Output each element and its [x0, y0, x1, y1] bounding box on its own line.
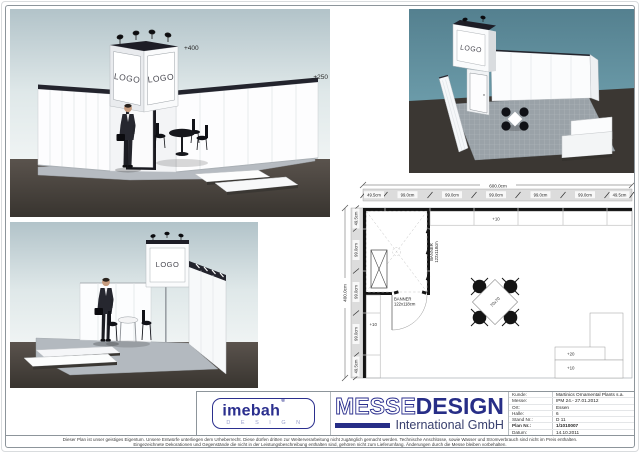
svg-text:122x118cm: 122x118cm: [434, 241, 439, 263]
banner-label-side: BANNER 122x118cm: [429, 241, 439, 263]
project-info-table: Kunde:Martinics Ornamental Plants s.a. M…: [509, 392, 634, 435]
step-high-label: +20: [567, 352, 575, 357]
dim-seg: 99.0cm: [578, 193, 592, 198]
render-side-view: LOGO: [10, 222, 258, 388]
info-value: IPM 24.- 27.01.2012: [553, 398, 634, 403]
dim-seg: 99.0cm: [354, 285, 359, 299]
dimension-top: 600.0cm 49.5cm 99.0cm 99.0cm 99.0cm 99.0…: [360, 181, 634, 201]
imebah-logo-cell: imebah® D E S I G N: [197, 392, 331, 435]
back-wall: [491, 50, 599, 102]
render-front-view: LOGO LOGO +400 +250: [10, 9, 330, 217]
floor-plan: 600.0cm 49.5cm 99.0cm 99.0cm 99.0cm 99.0…: [338, 178, 634, 389]
dim-total-width: 600.0cm: [489, 183, 507, 188]
legal-fine-print: Dieser Plan ist unser geistiges Eigentum…: [6, 435, 634, 448]
dim-total-depth: 400.0cm: [343, 284, 348, 302]
right-wall: [176, 78, 318, 173]
dim-seg: 99.0cm: [354, 243, 359, 257]
messedesign-wordmark: MESSEDESIGN: [335, 395, 504, 418]
imebah-word-text: imebah: [222, 402, 280, 419]
messedesign-logo-cell: MESSEDESIGN International GmbH: [331, 392, 509, 435]
info-value: 6: [553, 411, 634, 416]
dim-seg: 49.5cm: [354, 211, 359, 225]
dim-seg: 49.5cm: [367, 193, 381, 198]
tower-logo: LOGO: [156, 260, 180, 269]
briefcase: [117, 134, 126, 141]
storage-door: [467, 69, 489, 115]
left-wall: [38, 85, 110, 172]
imebah-subtitle: D E S I G N: [222, 420, 304, 426]
messedesign-subtitle: International GmbH: [395, 419, 503, 432]
info-value: D 11: [553, 417, 634, 422]
dim-seg: 99.0cm: [489, 193, 503, 198]
registered-mark: ®: [281, 398, 285, 404]
messedesign-logo: MESSEDESIGN International GmbH: [335, 395, 504, 432]
dimension-left: 400.0cm 49.5cm 99.0cm 99.0cm 99.0cm 49.5…: [341, 205, 363, 381]
fine-print-line-2: Eingezeichnete Dekorationen und Gegenstä…: [6, 442, 634, 447]
info-value: 1/1010007: [553, 423, 634, 428]
plan-sheet: LOGO LOGO +400 +250: [0, 0, 640, 453]
logo-tower: LOGO LOGO: [110, 41, 178, 112]
info-label: Stand Nr.:: [509, 417, 553, 422]
info-value: Essen: [553, 405, 634, 410]
tower-height-label: +400: [184, 45, 199, 52]
dim-seg: 99.0cm: [401, 193, 415, 198]
info-label: Halle:: [509, 411, 553, 416]
info-label: Messe:: [509, 398, 553, 403]
info-label: Ort:: [509, 405, 553, 410]
dim-seg: 49.5cm: [354, 359, 359, 373]
svg-text:122x118cm: 122x118cm: [394, 301, 416, 306]
messedesign-subtitle-row: International GmbH: [335, 419, 504, 432]
logo-bar: [335, 423, 390, 428]
render-aerial-view: LOGO: [409, 9, 635, 173]
step-low-label: +10: [567, 366, 575, 371]
info-label: Plan Nr.:: [509, 423, 553, 428]
dim-seg: 99.0cm: [445, 193, 459, 198]
wall-height-label: +250: [313, 74, 328, 81]
back-wall: [80, 283, 151, 342]
briefcase: [95, 308, 104, 315]
info-label: Kunde:: [509, 392, 553, 397]
platform-left-label: +10: [369, 322, 377, 327]
dim-seg: 49.5cm: [613, 193, 627, 198]
platform-top-label: +10: [492, 217, 500, 222]
design-solid-text: DESIGN: [416, 393, 504, 419]
plan-table-set: 70x70: [471, 278, 519, 326]
title-block: imebah® D E S I G N MESSEDESIGN Internat…: [196, 391, 634, 435]
messe-outline-text: MESSE: [335, 393, 416, 419]
dim-seg: 99.0cm: [534, 193, 548, 198]
imebah-logo: imebah® D E S I G N: [212, 398, 314, 429]
imebah-wordmark: imebah®: [222, 400, 304, 419]
info-value: Martinics Ornamental Plants s.a.: [553, 392, 634, 397]
dim-seg: 99.0cm: [354, 327, 359, 341]
